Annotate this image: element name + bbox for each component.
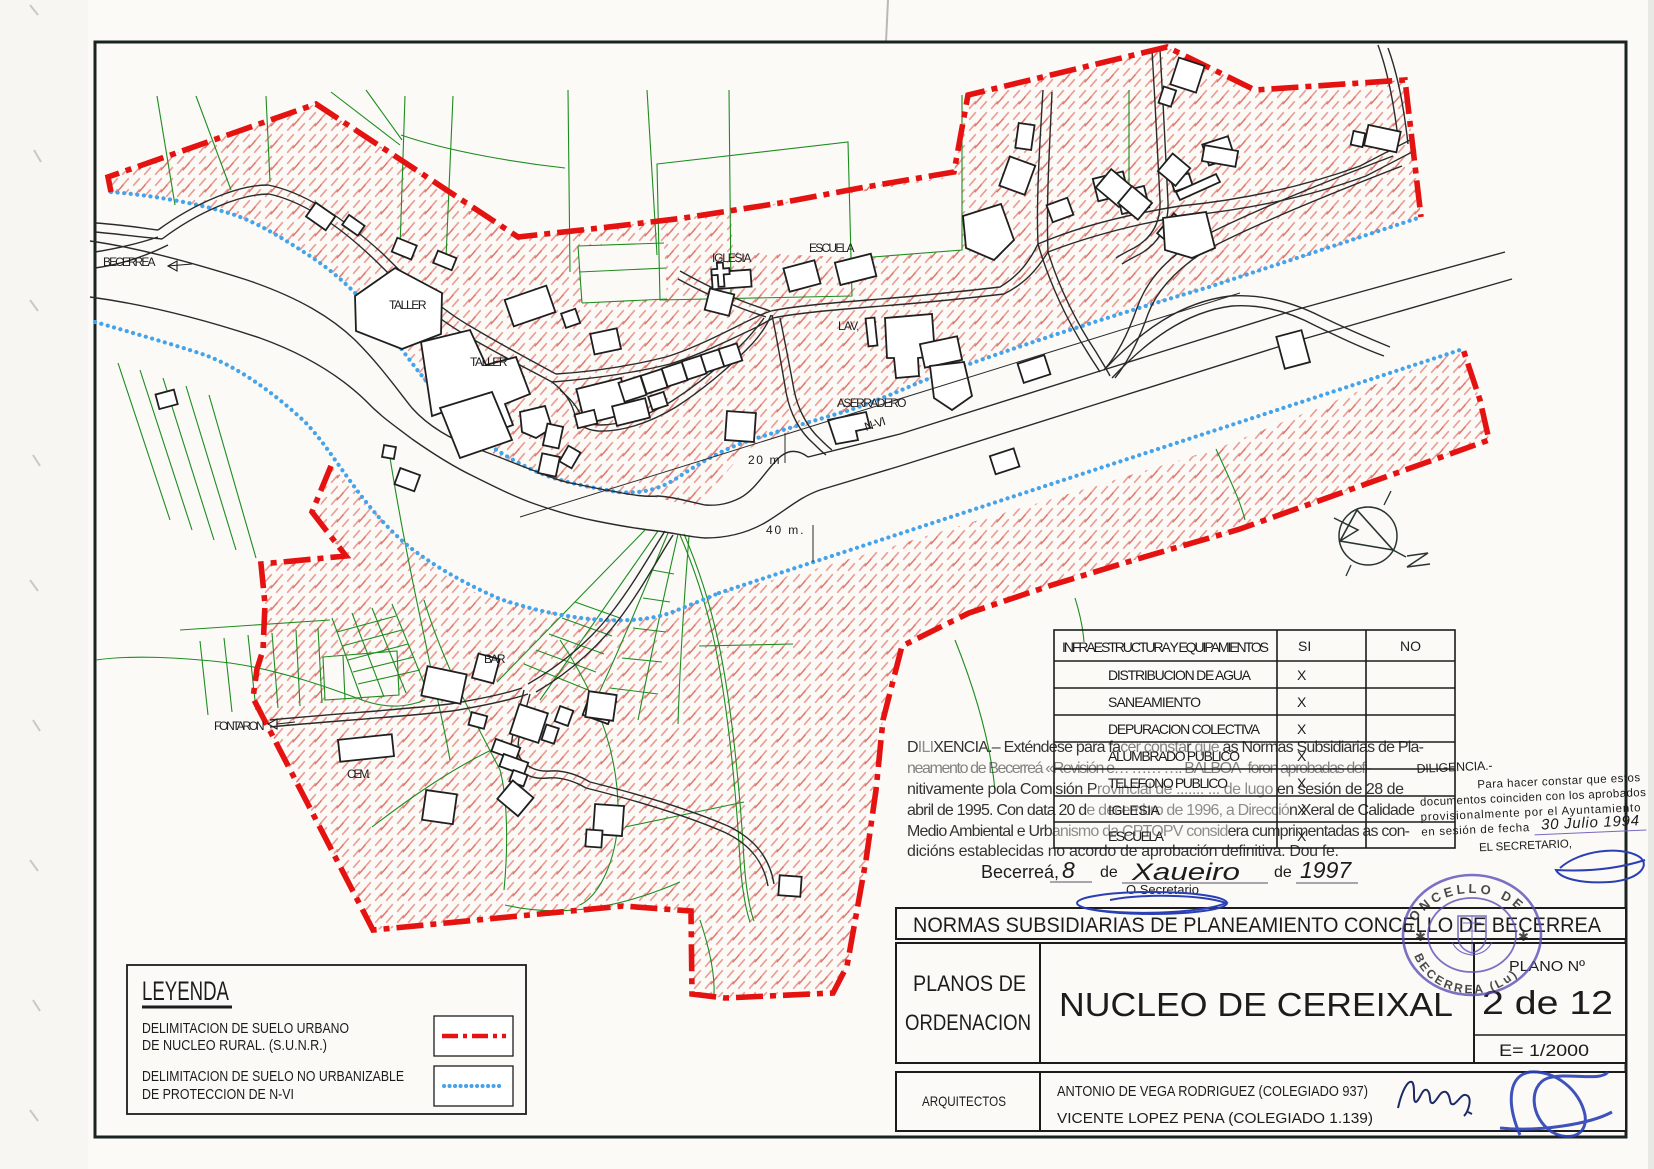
svg-text:neamento de Becerreá «Revisión: neamento de Becerreá «Revisión e… …… …. … bbox=[907, 760, 1372, 777]
svg-text:dicións establecidas no acordo: dicións establecidas no acordo de aproba… bbox=[907, 843, 1339, 860]
svg-text:abril de 1995. Con data 20 de: abril de 1995. Con data 20 de decembro d… bbox=[907, 802, 1415, 819]
svg-text:BECERREA: BECERREA bbox=[103, 255, 156, 269]
svg-text:PLANOS DE: PLANOS DE bbox=[913, 971, 1026, 996]
svg-text:de: de bbox=[1274, 864, 1292, 881]
svg-text:de: de bbox=[1100, 864, 1118, 881]
svg-text:DELIMITACION DE SUELO NO URBAN: DELIMITACION DE SUELO NO URBANIZABLE bbox=[142, 1069, 404, 1085]
svg-text:X: X bbox=[1297, 694, 1307, 710]
svg-text:ESCUELA: ESCUELA bbox=[809, 241, 855, 255]
svg-text:DE PROTECCION DE N-VI: DE PROTECCION DE N-VI bbox=[142, 1087, 294, 1103]
svg-text:X: X bbox=[1297, 667, 1307, 683]
svg-text:1997: 1997 bbox=[1300, 857, 1352, 883]
svg-text:VICENTE LOPEZ PENA (COLEGIA: VICENTE LOPEZ PENA (COLEGIADO 1.139) bbox=[1057, 1111, 1373, 1127]
svg-text:✱: ✱ bbox=[1415, 929, 1426, 944]
svg-text:SANEAMIENTO: SANEAMIENTO bbox=[1108, 694, 1201, 710]
svg-text:DISTRIBUCION DE AGUA: DISTRIBUCION DE AGUA bbox=[1108, 667, 1252, 683]
svg-text:40 m.: 40 m. bbox=[766, 523, 804, 537]
svg-text:FONTARON: FONTARON bbox=[214, 719, 265, 733]
svg-text:CEM.: CEM. bbox=[347, 767, 371, 781]
svg-text:DELIMITACION DE SUELO URBANO: DELIMITACION DE SUELO URBANO bbox=[142, 1021, 349, 1037]
svg-text:8: 8 bbox=[1062, 857, 1075, 883]
svg-text:DILIXENCIA.– Exténdese para fa: DILIXENCIA.– Exténdese para facer consta… bbox=[907, 739, 1424, 756]
svg-text:Medio Ambiental e Urbanismo da: Medio Ambiental e Urbanismo da CPTOPV co… bbox=[907, 823, 1410, 840]
svg-text:✱: ✱ bbox=[1518, 929, 1529, 944]
svg-text:NUCLEO DE CEREIXAL: NUCLEO DE CEREIXAL bbox=[1059, 986, 1453, 1023]
svg-text:DE NUCLEO RURAL. (S.U.N.R.): DE NUCLEO RURAL. (S.U.N.R.) bbox=[142, 1038, 327, 1054]
svg-text:nitivamente pola Comisión Prov: nitivamente pola Comisión Provincial de … bbox=[907, 781, 1404, 798]
svg-text:Becerreá,: Becerreá, bbox=[981, 862, 1059, 882]
svg-text:NO: NO bbox=[1400, 638, 1421, 654]
svg-text:TALLER: TALLER bbox=[470, 355, 508, 369]
svg-text:BAR: BAR bbox=[484, 652, 506, 666]
svg-text:X: X bbox=[1297, 721, 1307, 737]
svg-text:ARQUITECTOS: ARQUITECTOS bbox=[922, 1093, 1006, 1109]
svg-text:LEYENDA: LEYENDA bbox=[142, 976, 229, 1006]
svg-text:SI: SI bbox=[1298, 638, 1311, 654]
svg-text:PLANO Nº: PLANO Nº bbox=[1509, 958, 1586, 975]
svg-text:20 m: 20 m bbox=[748, 453, 780, 467]
svg-text:O Secretario: O Secretario bbox=[1126, 882, 1199, 897]
svg-text:ORDENACION: ORDENACION bbox=[905, 1010, 1031, 1035]
svg-text:E= 1/2000: E= 1/2000 bbox=[1499, 1041, 1589, 1060]
svg-text:NORMAS SUBSIDIARIAS DE PLAN: NORMAS SUBSIDIARIAS DE PLANEAMIENTO CONC… bbox=[913, 914, 1601, 937]
svg-text:IGLESIA: IGLESIA bbox=[712, 251, 752, 265]
svg-text:INFRAESTRUCTURA Y EQUIPAMIENTO: INFRAESTRUCTURA Y EQUIPAMIENTOS bbox=[1062, 639, 1269, 655]
svg-text:TALLER: TALLER bbox=[389, 298, 427, 312]
svg-text:DEPURACION COLECTIVA: DEPURACION COLECTIVA bbox=[1108, 721, 1261, 737]
svg-text:ANTONIO DE VEGA RODRIGUEZ: ANTONIO DE VEGA RODRIGUEZ (COLEGIADO 937… bbox=[1057, 1084, 1368, 1100]
svg-text:LAV,: LAV, bbox=[838, 319, 860, 333]
